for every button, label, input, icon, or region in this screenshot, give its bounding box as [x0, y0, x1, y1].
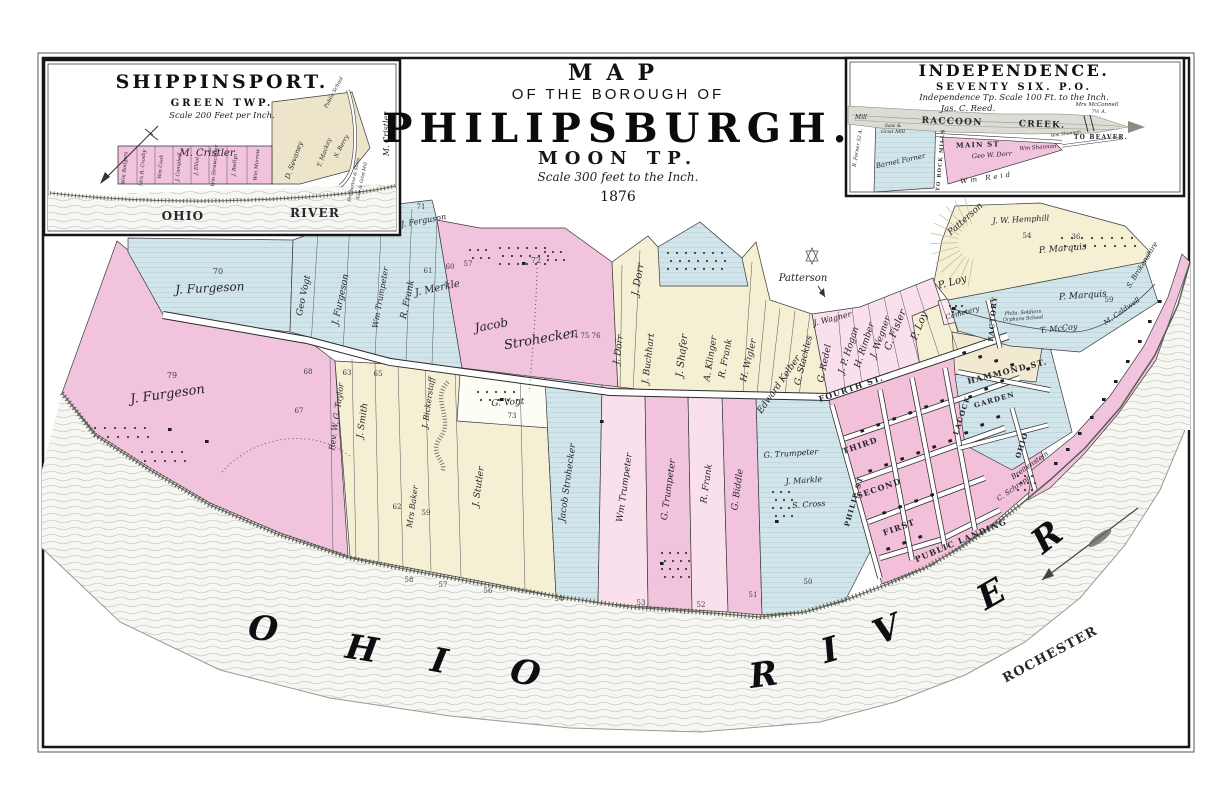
map-label: Mill [854, 114, 867, 121]
orchard-tree [151, 451, 153, 453]
orchard-tree [694, 252, 696, 254]
inset2-subtitle: SEVENTY SIX. P.O. [936, 82, 1092, 93]
orchard-tree [535, 247, 537, 249]
building [1148, 320, 1152, 323]
orchard-tree [184, 460, 186, 462]
map-label: 52 [697, 601, 706, 609]
orchard-tree [513, 391, 515, 393]
map-label: 71 [417, 203, 426, 211]
map-label: Grist Mill [881, 129, 905, 135]
orchard-tree [667, 268, 669, 270]
map-label: 51 [749, 591, 758, 599]
orchard-tree [775, 515, 777, 517]
orchard-tree [1024, 489, 1026, 491]
orchard-tree [134, 427, 136, 429]
orchard-tree [495, 391, 497, 393]
map-label: OHIO [162, 209, 205, 223]
orchard-tree [1031, 475, 1033, 477]
orchard-tree [688, 576, 690, 578]
orchard-tree [685, 252, 687, 254]
building [600, 420, 604, 423]
map-label: R [746, 653, 781, 697]
orchard-tree [563, 259, 565, 261]
orchard-tree [676, 252, 678, 254]
map-label: RIVER [290, 206, 340, 220]
orchard-tree [144, 427, 146, 429]
map-label: Patterson [778, 273, 828, 284]
orchard-tree [124, 427, 126, 429]
map-label: 56 [484, 587, 493, 595]
map-label: Mrs McConnell [1075, 102, 1119, 108]
orchard-tree [137, 436, 139, 438]
orchard-tree [469, 249, 471, 251]
orchard-tree [783, 499, 785, 501]
orchard-tree [672, 560, 674, 562]
orchard-tree [526, 247, 528, 249]
orchard-tree [502, 255, 504, 257]
orchard-tree [555, 259, 557, 261]
building [1078, 432, 1082, 435]
orchard-tree [104, 427, 106, 429]
orchard-tree [499, 247, 501, 249]
orchard-tree [144, 460, 146, 462]
orchard-tree [685, 268, 687, 270]
orchard-tree [680, 560, 682, 562]
orchard-tree [1091, 237, 1093, 239]
map-label: O [246, 608, 280, 651]
orchard-tree [697, 260, 699, 262]
orchard-tree [677, 552, 679, 554]
orchard-tree [669, 568, 671, 570]
orchard-tree [670, 260, 672, 262]
orchard-tree [721, 268, 723, 270]
orchard-tree [772, 491, 774, 493]
map-label: RACCOON [921, 116, 982, 128]
orchard-tree [1104, 245, 1106, 247]
orchard-tree [961, 305, 963, 307]
inset-independence: INDEPENDENCE. SEVENTY SIX. P.O. Independ… [846, 58, 1184, 196]
orchard-tree [724, 260, 726, 262]
orchard-tree [1131, 237, 1133, 239]
orchard-tree [780, 507, 782, 509]
orchard-tree [703, 268, 705, 270]
map-label: 57 [439, 581, 448, 589]
map-label: 67 [295, 407, 304, 415]
inset-shippinsport: SHIPPINSPORT. GREEN TWP. Scale 200 Feet … [44, 60, 400, 235]
orchard-tree [788, 491, 790, 493]
orchard-tree [547, 255, 549, 257]
orchard-tree [706, 260, 708, 262]
orchard-tree [544, 251, 546, 253]
orchard-tree [688, 560, 690, 562]
title-year: 1876 [600, 189, 636, 205]
orchard-tree [154, 460, 156, 462]
orchard-tree [480, 257, 482, 259]
orchard-tree [171, 451, 173, 453]
orchard-tree [688, 260, 690, 262]
orchard-tree [508, 263, 510, 265]
building [1102, 398, 1106, 401]
building [1158, 300, 1162, 303]
orchard-tree [949, 305, 951, 307]
orchard-tree [664, 560, 666, 562]
map-label: 59 [1105, 296, 1114, 304]
orchard-tree [517, 247, 519, 249]
orchard-tree [127, 436, 129, 438]
orchard-tree [117, 436, 119, 438]
title-sub: OF THE BOROUGH OF [512, 86, 724, 103]
building [1066, 448, 1070, 451]
orchard-tree [715, 260, 717, 262]
orchard-tree [721, 252, 723, 254]
building [952, 307, 956, 310]
orchard-tree [511, 255, 513, 257]
orchard-tree [499, 263, 501, 265]
orchard-tree [504, 391, 506, 393]
orchard-tree [181, 451, 183, 453]
orchard-tree [664, 576, 666, 578]
orchard-tree [547, 259, 549, 261]
title-township: MOON TP. [538, 148, 698, 169]
orchard-tree [1124, 245, 1126, 247]
building [522, 262, 526, 265]
orchard-tree [1031, 489, 1033, 491]
orchard-tree [107, 436, 109, 438]
orchard-tree [114, 427, 116, 429]
orchard-tree [517, 263, 519, 265]
map-label: MAIN ST [956, 139, 1000, 150]
orchard-tree [712, 252, 714, 254]
orchard-tree [147, 436, 149, 438]
orchard-tree [1111, 237, 1113, 239]
title-map: MAP [568, 60, 668, 86]
building [1126, 360, 1130, 363]
orchard-tree [488, 257, 490, 259]
map-sheet: J. Furgeson70J. Ferguson71J. Furgeson79G… [0, 0, 1214, 809]
orchard-tree [661, 568, 663, 570]
orchard-tree [679, 260, 681, 262]
map-label: 59 [422, 509, 431, 517]
building [1054, 462, 1058, 465]
orchard-tree [560, 251, 562, 253]
orchard-tree [485, 249, 487, 251]
orchard-tree [677, 568, 679, 570]
orchard-tree [1121, 237, 1123, 239]
map-label: 73 [508, 412, 517, 420]
orchard-tree [1081, 237, 1083, 239]
orchard-tree [1101, 237, 1103, 239]
map-label: 65 [374, 370, 383, 378]
inset1-subtitle: GREEN TWP. [171, 98, 274, 109]
orchard-tree [161, 451, 163, 453]
philipsburgh-map: J. Furgeson70J. Ferguson71J. Furgeson79G… [0, 0, 1214, 809]
map-label: 7½ A. [1092, 108, 1107, 115]
orchard-tree [955, 305, 957, 307]
orchard-tree [477, 249, 479, 251]
orchard-tree [780, 491, 782, 493]
title-scale: Scale 300 feet to the Inch. [538, 170, 699, 184]
orchard-tree [520, 255, 522, 257]
map-label: 58 [405, 576, 414, 584]
orchard-tree [712, 268, 714, 270]
map-label: 74 75 76 [569, 332, 601, 340]
map-label: M. Cristler [178, 148, 235, 159]
orchard-tree [174, 460, 176, 462]
orchard-tree [685, 552, 687, 554]
map-label: TO BEAVER. [1074, 134, 1128, 141]
building [660, 562, 664, 565]
map-label: 63 [343, 369, 352, 377]
lot-gbiddle [722, 394, 762, 615]
map-label: 79 [167, 371, 177, 380]
map-label: 62 [393, 503, 402, 511]
map-label: 70 [213, 267, 223, 276]
building [168, 428, 172, 431]
orchard-tree [94, 427, 96, 429]
map-label: 72 [531, 256, 541, 265]
inset1-scale: Scale 200 Feet per Inch. [169, 111, 275, 121]
orchard-tree [1061, 237, 1063, 239]
map-label: 54 [1023, 232, 1032, 240]
inset1-title: SHIPPINSPORT. [116, 71, 329, 93]
map-label: 61 [424, 267, 433, 275]
orchard-tree [661, 552, 663, 554]
orchard-tree [672, 576, 674, 578]
title-main: PHILIPSBURGH. [382, 105, 853, 152]
orchard-tree [685, 568, 687, 570]
orchard-tree [783, 515, 785, 517]
orchard-tree [552, 251, 554, 253]
building [1138, 340, 1142, 343]
orchard-tree [486, 391, 488, 393]
orchard-tree [544, 263, 546, 265]
map-label: 54 [555, 595, 564, 603]
orchard-tree [667, 252, 669, 254]
inset2-title: INDEPENDENCE. [919, 61, 1110, 80]
orchard-tree [680, 576, 682, 578]
orchard-tree [480, 399, 482, 401]
map-label: 36 [1072, 233, 1081, 241]
map-label: CREEK. [1019, 119, 1066, 131]
orchard-tree [1034, 482, 1036, 484]
map-label: 50 [804, 578, 813, 586]
orchard-tree [791, 515, 793, 517]
orchard-tree [772, 507, 774, 509]
orchard-tree [472, 257, 474, 259]
inset2-surveyor: Jas. C. Reed. [939, 104, 995, 114]
orchard-tree [788, 507, 790, 509]
orchard-tree [676, 268, 678, 270]
orchard-tree [164, 460, 166, 462]
orchard-tree [526, 263, 528, 265]
orchard-tree [775, 499, 777, 501]
orchard-tree [544, 247, 546, 249]
map-label: 57 [464, 260, 473, 268]
orchard-tree [477, 391, 479, 393]
building [1090, 416, 1094, 419]
orchard-tree [1134, 245, 1136, 247]
orchard-tree [694, 268, 696, 270]
orchard-tree [1114, 245, 1116, 247]
orchard-tree [703, 252, 705, 254]
map-label: 60 [446, 263, 455, 271]
orchard-tree [669, 552, 671, 554]
orchard-tree [1094, 245, 1096, 247]
map-label: 68 [304, 368, 313, 376]
map-label: 53 [637, 599, 646, 607]
orchard-tree [508, 247, 510, 249]
building [205, 440, 209, 443]
building [775, 520, 779, 523]
orchard-tree [141, 451, 143, 453]
building [1114, 380, 1118, 383]
